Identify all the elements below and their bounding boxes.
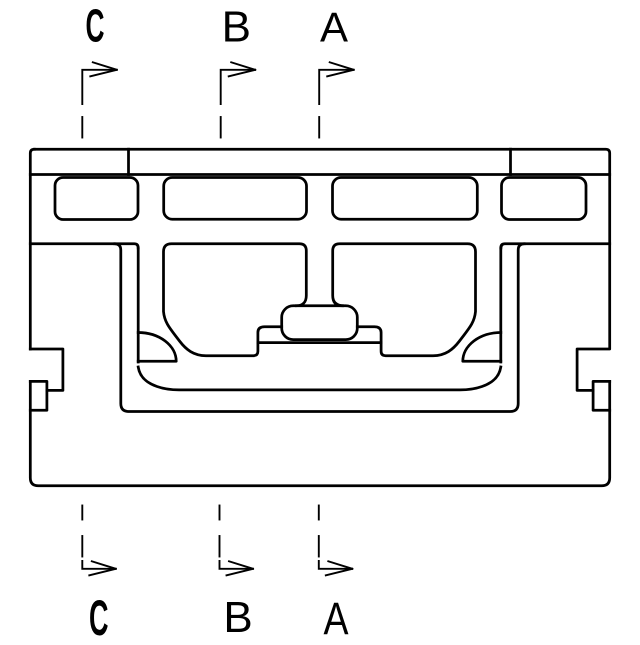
- svg-text:B: B: [222, 2, 251, 51]
- svg-text:C: C: [86, 0, 105, 51]
- svg-text:C: C: [89, 590, 109, 640]
- svg-text:A: A: [320, 3, 348, 50]
- svg-text:A: A: [324, 593, 349, 640]
- svg-text:B: B: [223, 593, 252, 640]
